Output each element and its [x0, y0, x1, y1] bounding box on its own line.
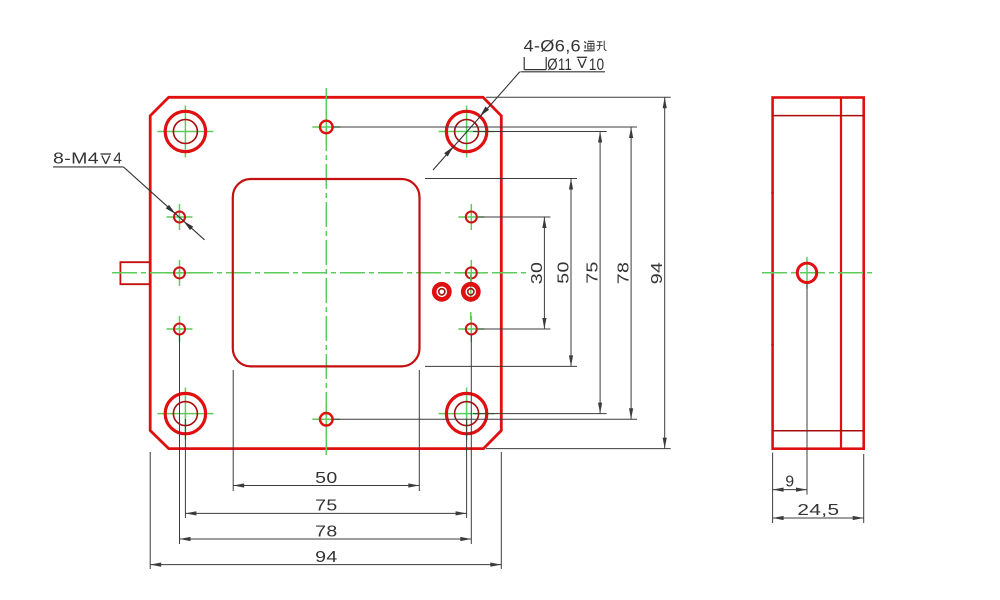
svg-text:94: 94 — [649, 262, 666, 285]
svg-text:24,5: 24,5 — [797, 502, 839, 519]
svg-text:94: 94 — [315, 549, 338, 566]
svg-text:30: 30 — [529, 262, 546, 285]
svg-text:4-Ø6,6: 4-Ø6,6 — [524, 36, 582, 55]
svg-text:75: 75 — [585, 261, 602, 284]
svg-text:50: 50 — [315, 470, 338, 487]
svg-text:50: 50 — [556, 261, 573, 284]
svg-text:8-M4: 8-M4 — [53, 151, 99, 168]
svg-text:75: 75 — [315, 498, 338, 515]
svg-text:78: 78 — [616, 262, 633, 285]
svg-text:78: 78 — [315, 524, 338, 541]
svg-text:4: 4 — [113, 151, 122, 168]
svg-text:9: 9 — [785, 474, 794, 491]
